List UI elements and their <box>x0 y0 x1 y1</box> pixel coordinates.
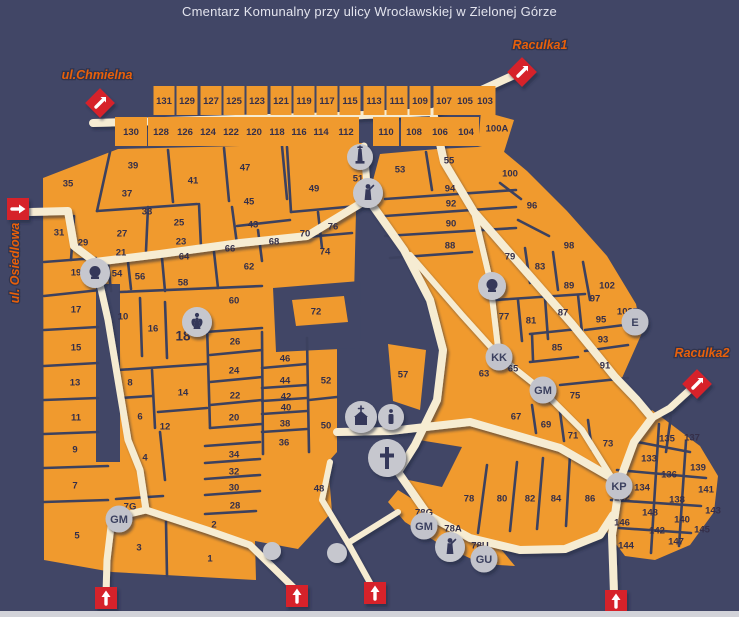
section-label-13: 13 <box>70 378 81 389</box>
section-label-7: 7 <box>72 481 77 492</box>
section-label-139: 139 <box>690 463 706 474</box>
section-label-82: 82 <box>525 494 536 505</box>
section-label-142: 142 <box>649 526 665 537</box>
osiedlowa-street-label: ul. Osiedlowa <box>8 223 22 304</box>
dot-icon[interactable] <box>263 542 281 560</box>
section-label-60: 60 <box>229 296 240 307</box>
svg-text:E: E <box>631 317 638 329</box>
section-label-136: 136 <box>661 470 677 481</box>
section-label-119: 119 <box>296 96 311 107</box>
cross-icon[interactable] <box>368 439 406 477</box>
section-label-114: 114 <box>313 127 329 138</box>
cemetery-map-page: Cmentarz Komunalny przy ulicy Wrocławski… <box>0 0 739 617</box>
section-label-115: 115 <box>342 96 358 107</box>
section-label-71: 71 <box>568 431 579 442</box>
section-label-9: 9 <box>72 445 77 456</box>
section-label-57: 57 <box>398 370 409 381</box>
section-label-34: 34 <box>229 450 240 461</box>
obelisk-dark-icon[interactable] <box>478 272 506 300</box>
section-label-84: 84 <box>551 494 562 505</box>
section-label-113: 113 <box>366 96 381 107</box>
section-label-64: 64 <box>179 252 190 263</box>
section-label-124: 124 <box>200 127 217 138</box>
section-label-52: 52 <box>321 376 332 387</box>
section-label-14: 14 <box>178 388 189 399</box>
section-label-148: 148 <box>642 508 658 519</box>
section-label-110: 110 <box>378 127 393 138</box>
section-label-121: 121 <box>273 96 290 107</box>
svg-text:GU: GU <box>476 554 493 566</box>
section-label-74: 74 <box>320 247 331 258</box>
section-label-112: 112 <box>338 127 353 138</box>
section-label-145: 145 <box>694 525 711 536</box>
raculka1-entrance[interactable] <box>507 57 537 87</box>
section-label-3: 3 <box>136 543 141 554</box>
gm-badge[interactable]: GM <box>106 506 133 533</box>
statue-icon[interactable] <box>435 532 465 562</box>
obelisk-icon[interactable] <box>347 144 373 170</box>
section-label-20: 20 <box>229 413 240 424</box>
section-label-83: 83 <box>535 262 546 273</box>
raculka2-street-label: Raculka2 <box>675 346 730 360</box>
section-label-79: 79 <box>505 252 516 263</box>
section-label-47: 47 <box>240 163 251 174</box>
section-label-23: 23 <box>176 237 187 248</box>
section-label-16: 16 <box>148 324 159 335</box>
section-label-21: 21 <box>116 248 127 259</box>
section-label-88: 88 <box>445 241 456 252</box>
section-label-134: 134 <box>634 483 651 494</box>
section-label-100A: 100A <box>486 124 509 135</box>
section-label-98: 98 <box>564 241 575 252</box>
south-entrance-2[interactable] <box>286 585 308 607</box>
section-label-43: 43 <box>248 220 259 231</box>
section-label-80: 80 <box>497 494 508 505</box>
svg-text:GM: GM <box>415 521 433 533</box>
svg-text:GM: GM <box>534 385 552 397</box>
section-label-72: 72 <box>311 307 322 318</box>
section-label-62: 62 <box>244 262 255 273</box>
section-label-81: 81 <box>526 316 537 327</box>
section-label-19: 19 <box>71 268 82 279</box>
section-label-91: 91 <box>600 361 611 372</box>
section-label-25: 25 <box>174 218 185 229</box>
svg-text:GM: GM <box>110 514 128 526</box>
section-label-45: 45 <box>244 197 255 208</box>
section-label-147: 147 <box>668 537 684 548</box>
section-label-107: 107 <box>436 96 452 107</box>
section-label-37: 37 <box>122 189 133 200</box>
section-label-75: 75 <box>570 391 581 402</box>
section-label-137: 137 <box>684 433 700 444</box>
section-label-4: 4 <box>142 453 148 464</box>
section-label-22: 22 <box>230 391 241 402</box>
section-label-130: 130 <box>123 127 139 138</box>
section-label-146: 146 <box>614 518 630 529</box>
south-entrance-3[interactable] <box>364 582 386 604</box>
raculka1-street-label: Raculka1 <box>513 38 568 52</box>
section-label-48: 48 <box>314 484 325 495</box>
section-label-63: 63 <box>479 369 490 380</box>
chmielna-entrance[interactable] <box>85 88 115 118</box>
section-label-30: 30 <box>229 483 240 494</box>
angel-icon[interactable] <box>182 307 212 337</box>
section-label-129: 129 <box>179 96 195 107</box>
section-label-24: 24 <box>229 366 240 377</box>
section-label-127: 127 <box>203 96 219 107</box>
section-label-96: 96 <box>527 201 538 212</box>
south-entrance-4[interactable] <box>605 590 627 612</box>
section-label-104: 104 <box>458 127 475 138</box>
section-label-44: 44 <box>280 376 291 387</box>
section-label-135: 135 <box>659 434 676 445</box>
section-label-118: 118 <box>269 127 284 138</box>
section-label-106: 106 <box>432 127 448 138</box>
section-label-103: 103 <box>477 96 493 107</box>
section-label-12: 12 <box>160 422 171 433</box>
chmielna-street-label: ul.Chmielna <box>62 68 133 82</box>
section-label-97: 97 <box>590 294 601 305</box>
section-label-117: 117 <box>319 96 334 107</box>
section-label-6: 6 <box>137 412 142 423</box>
gm-badge[interactable]: GM <box>530 377 557 404</box>
section-label-15: 15 <box>71 343 82 354</box>
svg-text:KP: KP <box>611 481 626 493</box>
section-label-70: 70 <box>300 229 311 240</box>
section-label-131: 131 <box>156 96 173 107</box>
section-label-49: 49 <box>309 184 320 195</box>
svg-text:KK: KK <box>491 352 507 364</box>
section-label-94: 94 <box>445 184 456 195</box>
section-label-76: 76 <box>328 222 339 233</box>
dot-icon[interactable] <box>327 543 347 563</box>
cemetery-map: 1311291271251231211191171151131111091071… <box>0 0 739 617</box>
section-label-111: 111 <box>390 96 406 107</box>
section-label-42: 42 <box>281 392 292 403</box>
section-label-33: 33 <box>142 207 153 218</box>
candle-icon[interactable] <box>378 404 404 430</box>
section-label-102: 102 <box>599 281 615 292</box>
section-label-73: 73 <box>603 439 614 450</box>
section-label-95: 95 <box>596 315 607 326</box>
section-label-68: 68 <box>269 237 280 248</box>
section-label-67: 67 <box>511 412 522 423</box>
section-label-92: 92 <box>446 199 457 210</box>
bust-icon[interactable] <box>80 258 110 288</box>
section-label-66: 66 <box>225 244 236 255</box>
section-label-108: 108 <box>406 127 422 138</box>
section-label-105: 105 <box>457 96 474 107</box>
section-label-143: 143 <box>705 506 721 517</box>
section-label-141: 141 <box>698 485 715 496</box>
section-label-38: 38 <box>280 419 291 430</box>
section-label-28: 28 <box>230 501 241 512</box>
section-label-126: 126 <box>177 127 193 138</box>
section-label-100: 100 <box>502 169 518 180</box>
section-label-17: 17 <box>71 305 82 316</box>
gu-badge[interactable]: GU <box>471 546 498 573</box>
section-label-116: 116 <box>291 127 306 138</box>
section-label-35: 35 <box>63 179 74 190</box>
section-label-31: 31 <box>54 228 65 239</box>
section-label-120: 120 <box>246 127 262 138</box>
section-label-8: 8 <box>127 378 132 389</box>
section-label-128: 128 <box>153 127 169 138</box>
section-label-140: 140 <box>674 515 690 526</box>
gm-badge[interactable]: GM <box>411 513 438 540</box>
kp-badge[interactable]: KP <box>606 473 633 500</box>
section-label-10: 10 <box>118 312 129 323</box>
section-label-54: 54 <box>112 269 123 280</box>
chapel-icon[interactable] <box>345 401 377 433</box>
section-label-93: 93 <box>598 335 609 346</box>
section-label-11: 11 <box>71 413 82 424</box>
section-label-133: 133 <box>641 454 657 465</box>
south-entrance-1[interactable] <box>95 587 117 609</box>
section-label-55: 55 <box>444 156 455 167</box>
section-label-36: 36 <box>279 438 290 449</box>
osiedlowa-entrance[interactable] <box>7 198 29 220</box>
section-label-89: 89 <box>564 281 575 292</box>
section-label-123: 123 <box>249 96 265 107</box>
section-label-29: 29 <box>78 238 89 249</box>
section-label-5: 5 <box>74 531 80 542</box>
kk-badge[interactable]: KK <box>486 344 513 371</box>
section-label-87: 87 <box>558 308 569 319</box>
section-label-53: 53 <box>395 165 406 176</box>
bottom-edge-strip <box>0 611 739 617</box>
section-label-50: 50 <box>321 421 332 432</box>
section-label-77: 77 <box>499 312 510 323</box>
section-label-90: 90 <box>446 219 457 230</box>
section-label-78: 78 <box>464 494 475 505</box>
section-label-138: 138 <box>669 495 685 506</box>
section-label-2: 2 <box>211 520 216 531</box>
section-label-40: 40 <box>281 403 292 414</box>
section-label-32: 32 <box>229 467 240 478</box>
section-label-39: 39 <box>128 161 139 172</box>
section-label-41: 41 <box>188 176 199 187</box>
section-label-125: 125 <box>226 96 243 107</box>
section-label-58: 58 <box>178 278 189 289</box>
section-label-122: 122 <box>223 127 239 138</box>
section-label-86: 86 <box>585 494 596 505</box>
section-label-144: 144 <box>618 541 635 552</box>
section-label-27: 27 <box>117 229 128 240</box>
section-label-85: 85 <box>552 343 563 354</box>
section-label-56: 56 <box>135 272 146 283</box>
section-label-109: 109 <box>412 96 428 107</box>
section-label-26: 26 <box>230 337 241 348</box>
section-label-69: 69 <box>541 420 552 431</box>
statue-icon[interactable] <box>353 178 383 208</box>
e-badge[interactable]: E <box>622 309 649 336</box>
section-label-1: 1 <box>207 554 213 565</box>
section-label-46: 46 <box>280 354 291 365</box>
